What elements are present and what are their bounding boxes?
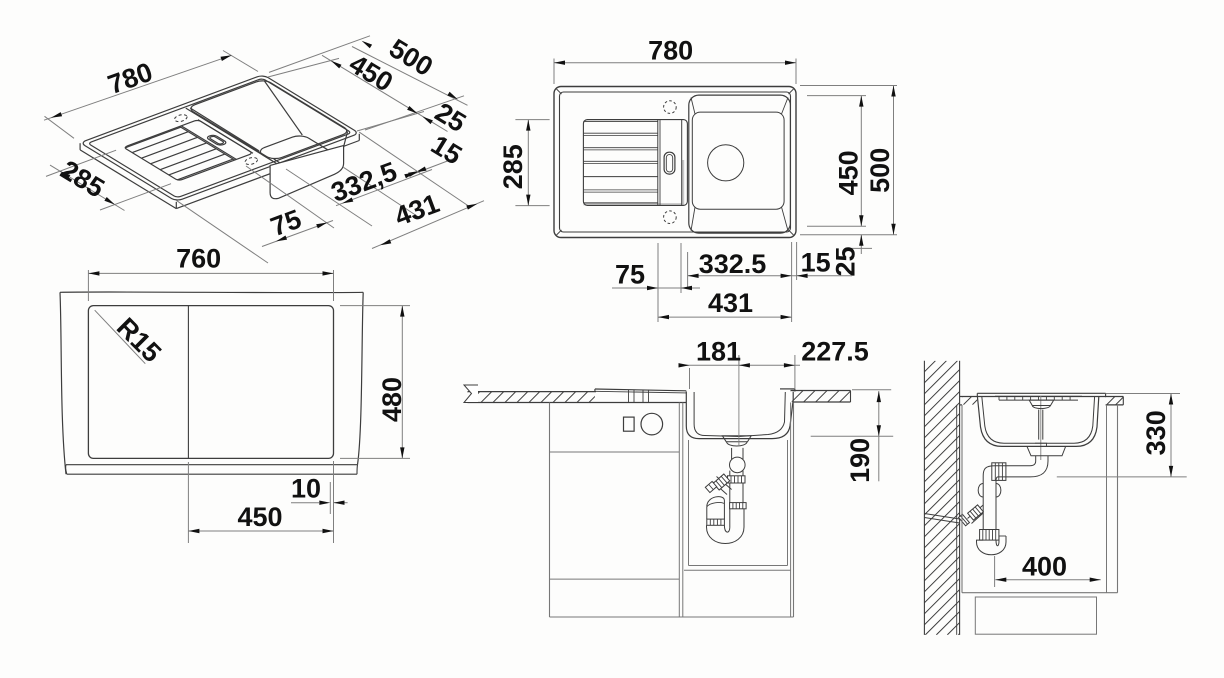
svg-text:190: 190 <box>845 438 875 483</box>
svg-text:15: 15 <box>801 248 831 278</box>
svg-text:431: 431 <box>708 288 753 318</box>
svg-text:227.5: 227.5 <box>801 337 869 367</box>
svg-text:25: 25 <box>831 246 861 276</box>
svg-text:450: 450 <box>834 150 864 195</box>
svg-text:450: 450 <box>237 502 282 532</box>
svg-text:332.5: 332.5 <box>699 249 767 279</box>
svg-text:10: 10 <box>291 474 321 504</box>
svg-text:75: 75 <box>615 260 645 290</box>
svg-text:400: 400 <box>1022 551 1067 581</box>
svg-text:330: 330 <box>1141 410 1171 455</box>
svg-text:760: 760 <box>176 244 221 274</box>
svg-text:500: 500 <box>865 148 895 193</box>
svg-text:480: 480 <box>377 377 407 422</box>
svg-text:780: 780 <box>648 35 693 65</box>
svg-text:285: 285 <box>498 144 528 189</box>
svg-text:181: 181 <box>696 337 741 367</box>
